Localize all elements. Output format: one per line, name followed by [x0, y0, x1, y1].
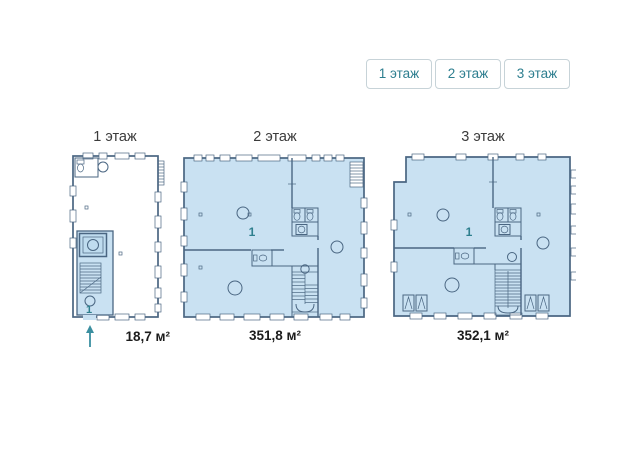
floor-plan-2-drawing: 1 [180, 152, 370, 324]
plan-3-area: 352,1 м² [390, 328, 576, 343]
floor-1-button[interactable]: 1 этаж [366, 59, 432, 89]
entrance-arrow-icon [84, 324, 96, 348]
plan-3-area-value: 352,1 м² [457, 328, 509, 343]
floor-plan-3: 3 этаж [390, 128, 576, 343]
plan-2-area-value: 351,8 м² [249, 328, 301, 343]
floor-3-button[interactable]: 3 этаж [504, 59, 570, 89]
plan-3-title: 3 этаж [390, 128, 576, 146]
floor-switcher: 1 этаж 2 этаж 3 этаж [366, 59, 570, 89]
plan-2-title: 2 этаж [180, 128, 370, 146]
floor-plan-3-drawing: 1 [390, 152, 576, 320]
ladder-icon [350, 162, 363, 187]
unit-number-label: 1 [249, 225, 256, 239]
plan-1-area-value: 18,7 м² [125, 329, 170, 344]
outer-wall [394, 157, 570, 316]
plan-1-title: 1 этаж [60, 128, 170, 146]
plan-2-area: 351,8 м² [180, 328, 370, 343]
unit-number-label: 1 [466, 225, 473, 239]
floor-plan-1: 1 этаж [60, 128, 170, 348]
outer-wall [184, 158, 364, 317]
floor-plan-viewer: 1 этаж 2 этаж 3 этаж 1 этаж [0, 0, 636, 450]
floor-2-button[interactable]: 2 этаж [435, 59, 501, 89]
unit-number-label: 1 [86, 304, 92, 316]
plan-1-area: 18,7 м² [60, 324, 170, 348]
floor-plan-2: 2 этаж [180, 128, 370, 343]
floor-plan-1-drawing: 1 [63, 152, 167, 324]
highlighted-unit: 1 [77, 231, 113, 320]
